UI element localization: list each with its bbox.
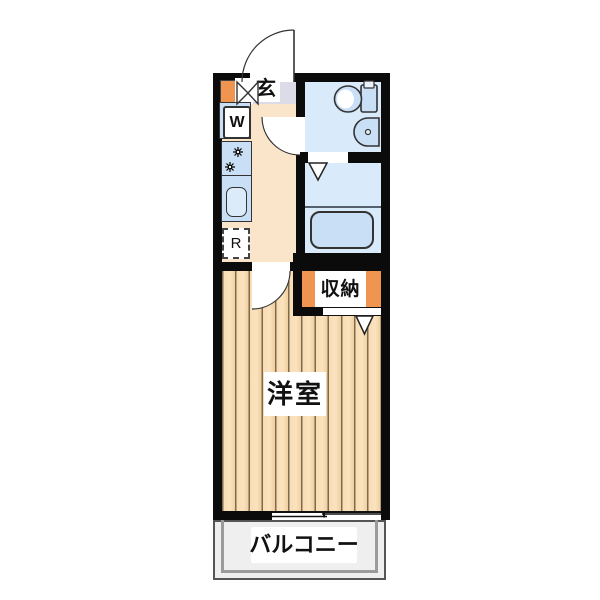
wall-bottom-left (213, 511, 272, 520)
bath-divider-line (305, 206, 381, 208)
stove-icon (221, 141, 252, 176)
bathtub-icon (310, 211, 374, 249)
refrigerator-space: R (222, 228, 250, 259)
entrance-label: 玄 (252, 75, 280, 102)
washing-machine-icon: W (223, 106, 251, 139)
storage-orange-band-right (366, 271, 381, 307)
wall-toilet-bath-right (348, 152, 390, 163)
toilet-room-floor (305, 82, 381, 152)
wall-mid-upper (296, 73, 305, 117)
wall-toilet-bath-left (296, 152, 308, 163)
sliding-window (272, 511, 381, 520)
storage-folding-door (323, 307, 381, 316)
kitchen-sink-icon (226, 187, 247, 217)
balcony-label: バルコニー (251, 527, 357, 563)
floor-plan: 収納 W R 玄 洋室 バルコニー (0, 0, 600, 600)
bifold-door-background (235, 78, 253, 104)
storage-label: 収納 (315, 271, 366, 307)
storage-orange-band-left (302, 271, 315, 307)
wall-room-top-left (213, 262, 252, 271)
wall-top-right (294, 73, 390, 82)
western-room-label: 洋室 (264, 372, 326, 416)
